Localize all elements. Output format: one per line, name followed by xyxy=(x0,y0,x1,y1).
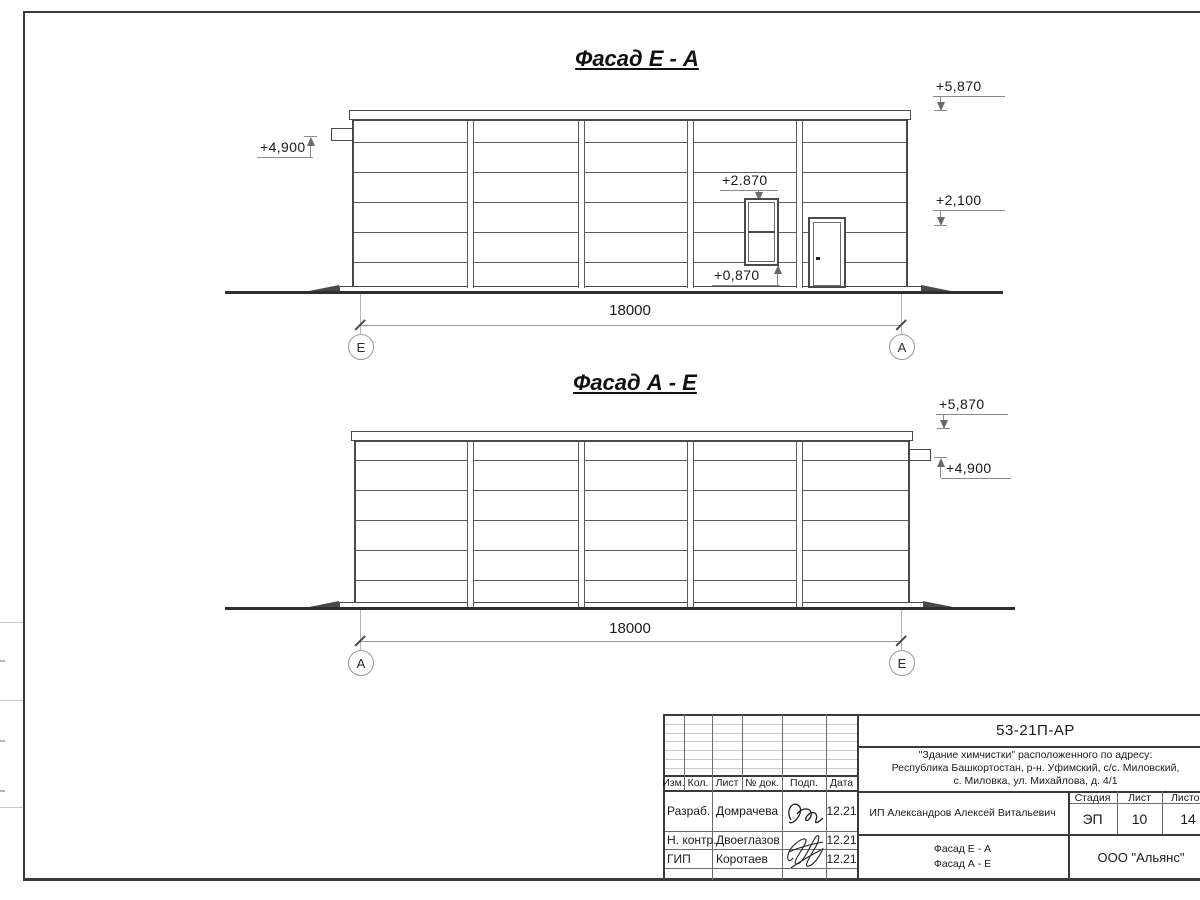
level-mark-4900: +4,900 xyxy=(260,139,306,155)
tb-line xyxy=(664,750,857,751)
frame-top xyxy=(23,11,1200,13)
axis-bubble-a: А xyxy=(889,334,915,360)
mullion xyxy=(796,442,803,607)
level-leader xyxy=(941,478,1011,479)
dimension-line xyxy=(360,325,902,326)
level-leader xyxy=(933,96,1005,97)
tb-name: Домрачева xyxy=(716,790,782,831)
level-foot xyxy=(937,428,950,429)
client-name: ИП Александров Алексей Витальевич xyxy=(857,793,1068,833)
tb-line xyxy=(664,733,857,734)
panel-joint-line xyxy=(354,142,906,143)
facade-ea-title: Фасад Е - А xyxy=(467,46,807,72)
facade-ae-wall xyxy=(354,440,910,609)
level-foot xyxy=(934,110,947,111)
tb-role: Н. контр. xyxy=(667,831,712,849)
axis-bubble-e: Е xyxy=(348,334,374,360)
dimension-line xyxy=(360,641,902,642)
sheets-label: Листов xyxy=(1162,792,1200,803)
sheet-number: 10 xyxy=(1117,804,1162,834)
tb-line xyxy=(664,759,857,760)
level-mark-roof: +5,870 xyxy=(936,78,982,94)
stage-value: ЭП xyxy=(1068,804,1117,834)
margin-line xyxy=(0,700,23,701)
tb-role: Разраб. xyxy=(667,790,712,831)
level-arrow-up-icon xyxy=(774,265,782,274)
tb-col-list: Лист xyxy=(712,776,742,790)
dimension-18000: 18000 xyxy=(580,620,680,637)
tb-date: 12.21 xyxy=(826,831,857,849)
axis-bubble-e: Е xyxy=(889,650,915,676)
stage-label: Стадия xyxy=(1068,792,1117,803)
window-transom xyxy=(748,231,775,233)
signature xyxy=(783,792,826,878)
level-arrow-up-icon xyxy=(937,458,945,467)
panel-joint-line xyxy=(356,520,908,521)
level-leader xyxy=(712,285,780,286)
mullion xyxy=(467,442,474,607)
content-line2: Фасад А - Е xyxy=(857,856,1068,872)
door-leaf xyxy=(813,222,841,286)
extension-line xyxy=(901,610,902,652)
extension-line xyxy=(360,294,361,334)
tb-line xyxy=(712,715,713,880)
dimension-18000: 18000 xyxy=(580,302,680,319)
level-leader xyxy=(720,190,778,191)
margin-mark xyxy=(0,790,5,792)
mullion xyxy=(796,121,803,288)
doc-code: 53-21П-АР xyxy=(857,716,1200,744)
panel-joint-line xyxy=(356,460,908,461)
ground-line xyxy=(225,607,1015,610)
panel-joint-line xyxy=(354,202,906,203)
extension-line xyxy=(901,294,902,334)
axis-bubble-a: А xyxy=(348,650,374,676)
tb-col-podp: Подп. xyxy=(782,776,826,790)
tb-line xyxy=(664,724,857,725)
panel-joint-line xyxy=(356,550,908,551)
level-leader xyxy=(936,414,1008,415)
level-foot xyxy=(934,225,947,226)
tb-name: Коротаев xyxy=(716,849,782,868)
mullion xyxy=(687,121,694,288)
level-mark-2100: +2,100 xyxy=(936,192,982,208)
door-handle xyxy=(816,257,820,260)
frame-bottom xyxy=(23,878,1200,881)
window xyxy=(744,198,779,266)
level-mark-window-top: +2.870 xyxy=(722,172,768,188)
sheet-label: Лист xyxy=(1117,792,1162,803)
level-arrow-up-icon xyxy=(307,137,315,146)
door xyxy=(808,217,846,288)
project-line1: "Здание химчистки" расположенного по адр… xyxy=(857,748,1200,762)
tb-role: ГИП xyxy=(667,849,712,868)
tb-date: 12.21 xyxy=(826,849,857,868)
panel-joint-line xyxy=(356,490,908,491)
project-line2: Республика Башкортостан, р-н. Уфимский, … xyxy=(857,761,1200,775)
tb-col-doc: № док. xyxy=(742,776,782,790)
level-foot xyxy=(934,457,947,458)
level-mark-window-sill: +0,870 xyxy=(714,267,760,283)
mullion xyxy=(687,442,694,607)
tb-line xyxy=(664,868,857,869)
tb-line xyxy=(664,741,857,742)
extension-line xyxy=(360,610,361,652)
mullion xyxy=(467,121,474,288)
mullion xyxy=(578,121,585,288)
frame-left xyxy=(23,11,25,880)
level-leader xyxy=(933,210,1005,211)
sheets-total: 14 xyxy=(1162,804,1200,834)
level-leader xyxy=(257,157,313,158)
panel-joint-line xyxy=(356,580,908,581)
company-name: ООО "Альянс" xyxy=(1068,834,1200,880)
margin-line xyxy=(0,807,23,808)
tb-name: Двоеглазов xyxy=(716,831,782,849)
margin-line xyxy=(0,622,23,623)
level-foot xyxy=(304,136,317,137)
level-mark-4900: +4,900 xyxy=(946,460,992,476)
ground-line xyxy=(225,291,1003,294)
panel-joint-line xyxy=(354,172,906,173)
mullion xyxy=(578,442,585,607)
facade-ae-title: Фасад А - Е xyxy=(465,370,805,396)
tb-col-kol: Кол. xyxy=(684,776,712,790)
margin-mark xyxy=(0,660,5,662)
level-mark-roof: +5,870 xyxy=(939,396,985,412)
tb-line xyxy=(664,768,857,769)
tb-col-izm: Изм. xyxy=(663,776,684,790)
tb-line xyxy=(663,714,665,880)
tb-col-data: Дата xyxy=(826,776,857,790)
content-line1: Фасад Е - А xyxy=(857,841,1068,857)
drawing-sheet: Фасад Е - А +5,870 +2,100 +4,900 +2.870 … xyxy=(0,0,1200,900)
project-line3: с. Миловка, ул. Михайлова, д. 4/1 xyxy=(857,774,1200,788)
margin-mark xyxy=(0,740,5,742)
facade-ea-wall xyxy=(352,119,908,290)
tb-date: 12.21 xyxy=(826,790,857,831)
